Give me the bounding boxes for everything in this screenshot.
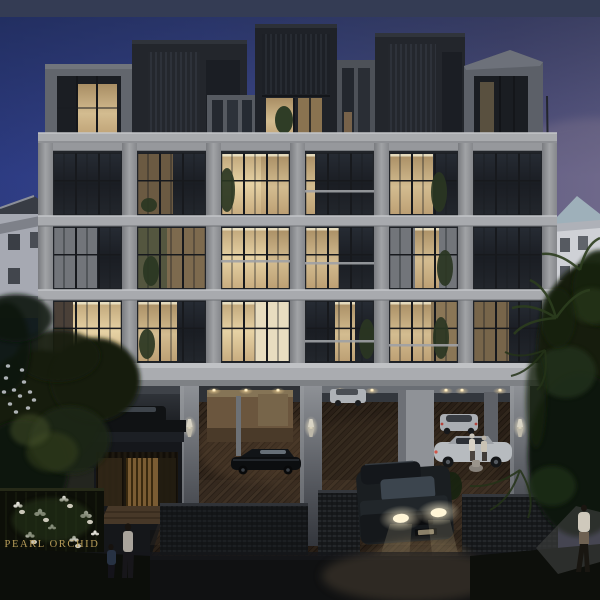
svg-text:PEARL ORCHID: PEARL ORCHID	[5, 539, 100, 550]
